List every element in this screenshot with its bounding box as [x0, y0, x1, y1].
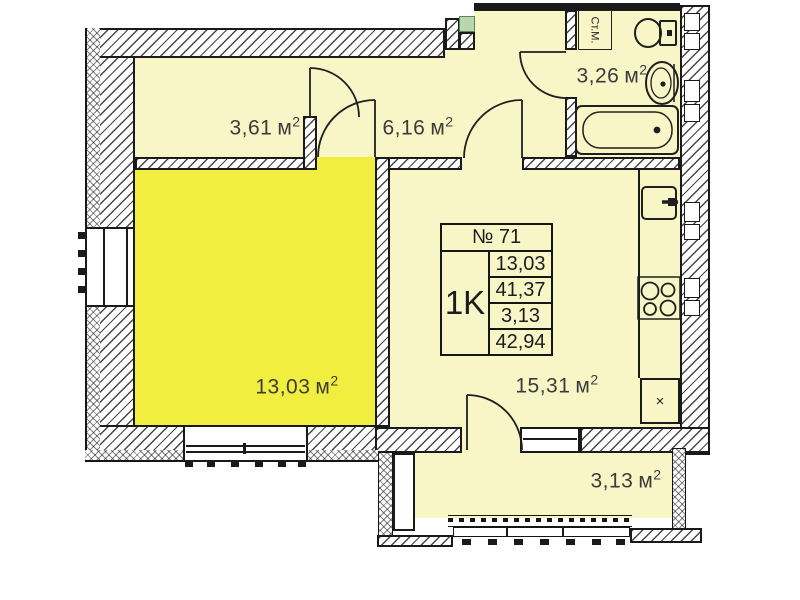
- area-label-storage: 3,61м2: [229, 114, 300, 141]
- area-label-living: 13,03м2: [255, 373, 338, 400]
- area-label-bathroom: 3,26м2: [576, 62, 647, 89]
- total-area-value: 41,37: [490, 278, 551, 304]
- door-bathroom: [520, 52, 566, 98]
- area-label-balcony: 3,13м2: [590, 467, 661, 494]
- apartment-areas: 13,03 41,37 3,13 42,94: [490, 252, 551, 354]
- bathroom-sink: [646, 62, 678, 104]
- area-label-kitchen: 15,31м2: [515, 372, 598, 399]
- apartment-floor-plan: × Ст.М. 3,61м2 6,16м2 3,26м2 13,03м2 15,…: [0, 0, 800, 600]
- door-living: [318, 100, 375, 157]
- balcony-area-value: 3,13: [490, 304, 551, 330]
- door-balcony: [467, 395, 522, 450]
- toilet: [635, 19, 676, 47]
- washing-machine-label: Ст.М.: [589, 16, 601, 43]
- kitchen-sink: [642, 187, 678, 219]
- door-storage: [310, 68, 359, 117]
- kitchen-vent-box: ×: [640, 378, 680, 424]
- washing-machine: Ст.М.: [578, 10, 612, 50]
- door-kitchen: [464, 100, 522, 158]
- bathtub: [576, 106, 678, 154]
- apartment-info-table: № 71 1K 13,03 41,37 3,13 42,94: [440, 223, 553, 356]
- vent-cross-mark: ×: [656, 393, 665, 410]
- stove: [638, 277, 680, 319]
- apartment-type: 1K: [442, 252, 490, 354]
- apartment-number: № 71: [442, 225, 551, 252]
- fixtures-layer: [0, 0, 800, 600]
- area-label-hallway: 6,16м2: [382, 114, 453, 141]
- living-area-value: 13,03: [490, 252, 551, 278]
- overall-area-value: 42,94: [490, 330, 551, 354]
